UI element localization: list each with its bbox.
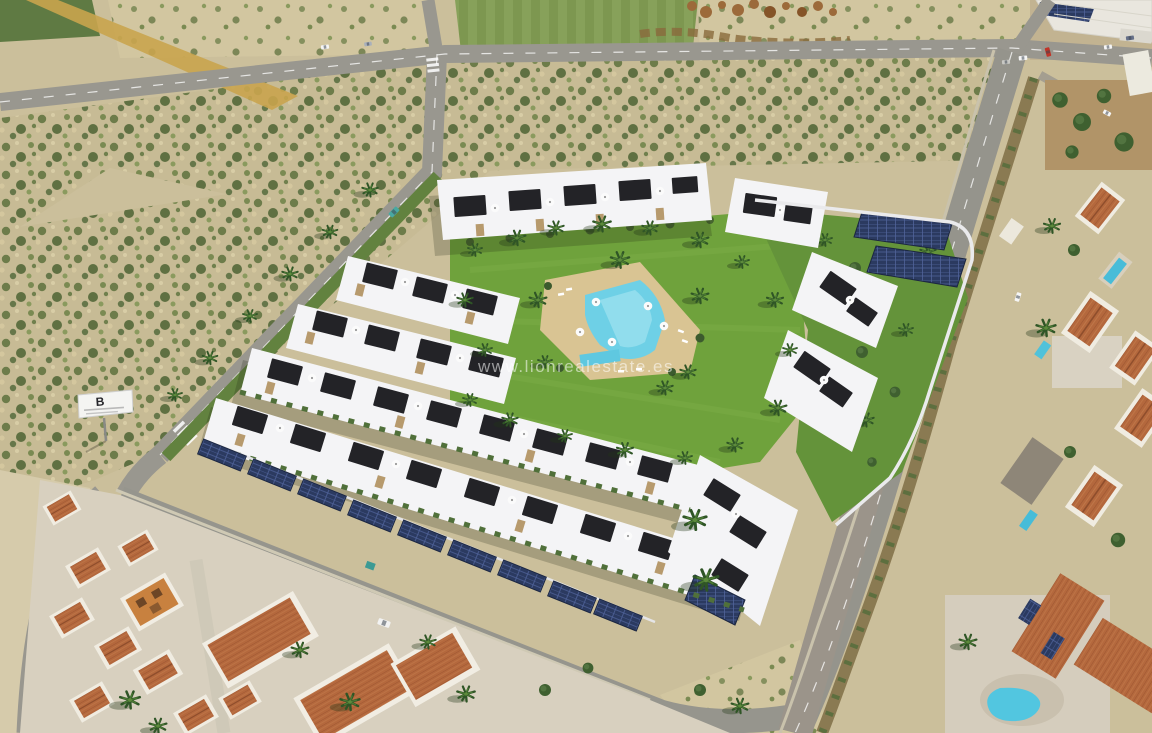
tree xyxy=(1068,244,1080,256)
tree xyxy=(1064,446,1076,458)
tree xyxy=(1097,89,1111,103)
tree xyxy=(1065,145,1078,158)
tree xyxy=(1052,92,1068,108)
aerial-photo: B www.lionrealestate.es xyxy=(0,0,1152,733)
crosswalk-top xyxy=(426,57,439,72)
billboard-logo: B xyxy=(95,394,105,409)
watermark: www.lionrealestate.es xyxy=(477,357,674,376)
road-top-stub xyxy=(428,0,437,54)
tree xyxy=(539,684,551,696)
car xyxy=(1002,60,1010,65)
car xyxy=(1019,55,1028,60)
tree xyxy=(583,663,594,674)
tree xyxy=(1114,132,1133,151)
tree xyxy=(1111,533,1125,547)
tree xyxy=(694,684,706,696)
tree xyxy=(1073,113,1091,131)
aerial-photo-canvas: B www.lionrealestate.es xyxy=(0,0,1152,733)
